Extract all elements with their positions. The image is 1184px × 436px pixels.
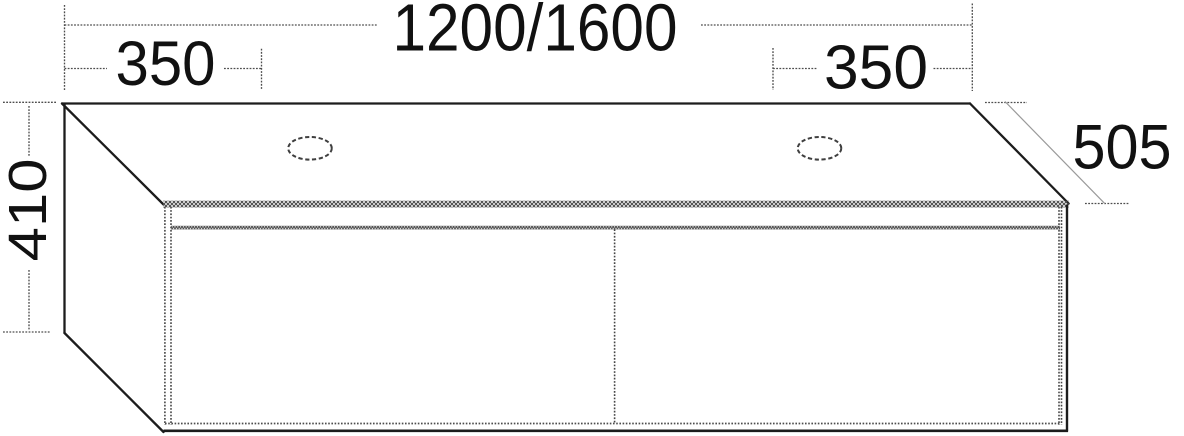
svg-text:1200/1600: 1200/1600: [393, 0, 678, 66]
svg-text:350: 350: [116, 29, 216, 99]
svg-text:350: 350: [824, 34, 928, 103]
svg-text:505: 505: [1073, 113, 1172, 183]
svg-text:410: 410: [0, 158, 58, 261]
